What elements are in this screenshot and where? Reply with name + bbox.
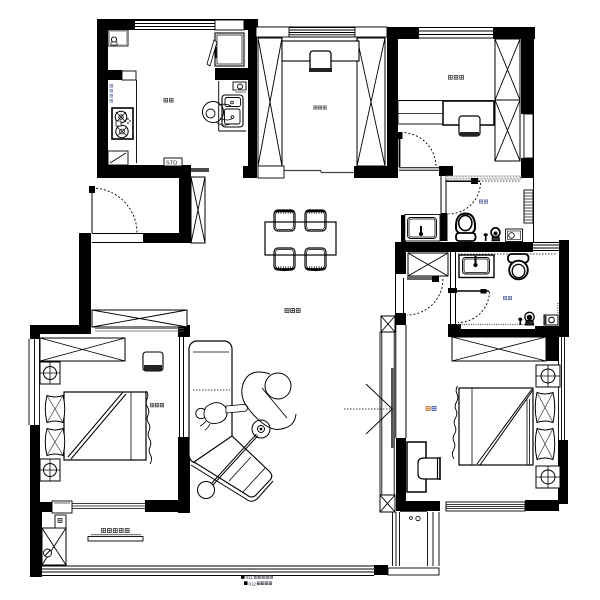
svg-text:011:: 011: <box>246 575 254 580</box>
svg-text:STO: STO <box>166 160 178 166</box>
svg-text:012:: 012: <box>249 581 258 586</box>
